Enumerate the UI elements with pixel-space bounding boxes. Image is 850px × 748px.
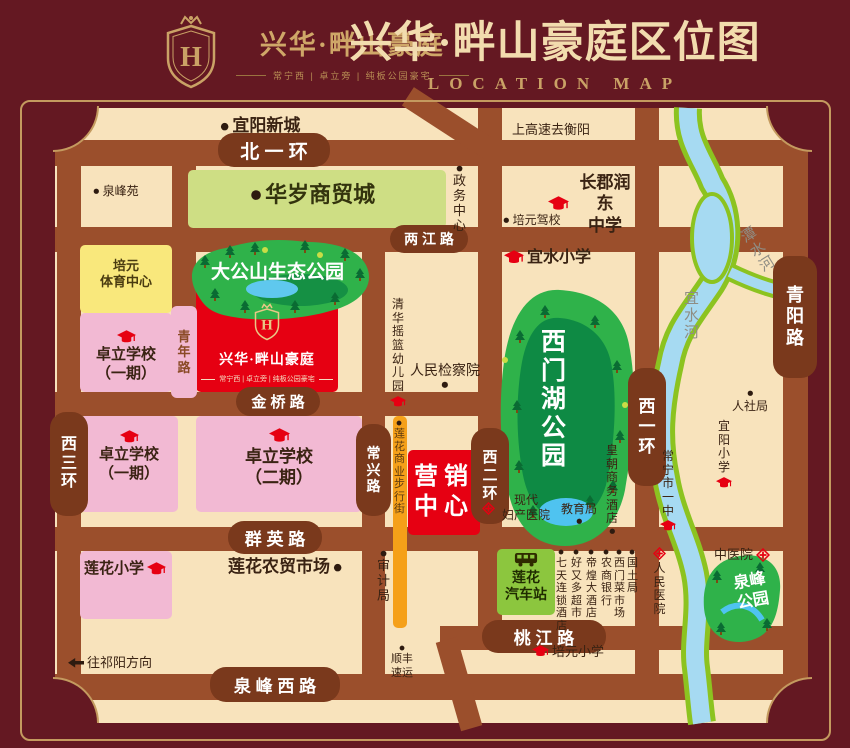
label-text: 宜水河 bbox=[684, 290, 699, 341]
dot-icon bbox=[333, 563, 342, 572]
road-label-jinqiao-rd: 金 桥 路 bbox=[236, 387, 320, 416]
road-beiyihuan bbox=[55, 140, 808, 166]
label-text: 人民医院 bbox=[654, 562, 666, 617]
poi-yiyang-new-town: 宜阳新城 bbox=[220, 116, 300, 136]
label-line: 卓立学校 bbox=[84, 446, 174, 465]
label-text: 人社局 bbox=[732, 399, 768, 413]
poi-sf-express: 顺丰速运 bbox=[382, 645, 422, 681]
map: H 兴华·畔山豪庭 常宁西 | 卓立旁 | 纯板公园豪宅 北 一 环两 江 路金… bbox=[0, 0, 850, 748]
road-label-text: 青年路 bbox=[178, 329, 191, 375]
project-tagline: 常宁西 | 卓立旁 | 纯板公园豪宅 bbox=[201, 374, 332, 384]
dot-icon bbox=[588, 549, 594, 555]
label-text: 莲花农贸市场 bbox=[228, 557, 330, 577]
poi-highway-to-hengyang: 上高速去衡阳 bbox=[512, 122, 590, 138]
poi-dagongshan-park-label: 大公山生态公园 bbox=[211, 262, 344, 285]
road-label-beiyihuan: 北 一 环 bbox=[218, 133, 330, 167]
poi-sales-center-label: 营销中心 bbox=[408, 462, 480, 522]
poi-dihuang-hotel: 帝煌大酒店 bbox=[586, 549, 597, 620]
label-line: 速运 bbox=[382, 667, 422, 681]
label-text: 常宁市一中 bbox=[662, 450, 674, 518]
poi-yishui-primary: 宜水小学 bbox=[504, 248, 591, 267]
cap-icon bbox=[147, 562, 166, 576]
poi-lianhua-primary-label: 莲花小学 bbox=[84, 560, 166, 578]
cap-icon bbox=[390, 396, 406, 408]
cap-icon bbox=[269, 428, 290, 444]
poi-qinghua-cradle-kindergarten: 清华摇篮幼儿园 bbox=[390, 298, 406, 408]
poi-lianhua-bus-station-label: 莲花汽车站 bbox=[499, 552, 553, 604]
poi-peiyuan-sports-label: 培元体育中心 bbox=[84, 258, 168, 291]
label-line: 体育中心 bbox=[84, 274, 168, 290]
svg-text:H: H bbox=[180, 42, 202, 73]
poi-peiyuan-primary: 培元小学 bbox=[532, 644, 604, 660]
label-text: 农商银行 bbox=[601, 557, 612, 607]
poi-7days-inn: 七天连锁酒店 bbox=[556, 549, 567, 632]
road-qingyang-rd bbox=[783, 118, 808, 723]
dot-icon bbox=[380, 550, 387, 557]
cap-icon bbox=[716, 477, 732, 489]
label-text: 往祁阳方向 bbox=[87, 655, 152, 671]
dot-icon bbox=[503, 217, 510, 224]
label-line: 卓立学校 bbox=[216, 446, 342, 467]
label-text: 莲花小学 bbox=[84, 560, 144, 578]
label-text: 大公山生态公园 bbox=[211, 262, 344, 285]
poi-haoyouduo-supermarket: 好又多超市 bbox=[571, 549, 582, 620]
poi-lianhua-farmers-market: 莲花农贸市场 bbox=[228, 557, 342, 577]
arrow-icon bbox=[68, 658, 84, 668]
poi-rural-commercial-bank: 农商银行 bbox=[601, 549, 612, 607]
poi-land-resources-bureau: 国土局 bbox=[627, 549, 638, 595]
label-line: 培元 bbox=[84, 258, 168, 274]
label-text: 教育局 bbox=[561, 502, 597, 516]
road-label-changxing-rd: 常兴路 bbox=[356, 424, 391, 516]
dot-icon bbox=[573, 549, 579, 555]
cap-icon bbox=[660, 520, 676, 532]
label-line: 长郡润东 bbox=[572, 172, 638, 215]
dot-icon bbox=[396, 420, 402, 426]
road-label-qingyang-rd: 青阳路 bbox=[773, 256, 817, 378]
label-line: （一期） bbox=[84, 465, 174, 484]
location-map-poster: { "header": { "logo_name": "兴华·畔山豪庭", "l… bbox=[0, 0, 850, 748]
cap-icon bbox=[548, 196, 569, 212]
label-line: 营销 bbox=[408, 462, 480, 492]
label-text: 宜阳小学 bbox=[718, 420, 730, 475]
label-line: 顺丰 bbox=[382, 653, 422, 667]
poi-changjun-rundong-school: 长郡润东中学 bbox=[548, 172, 638, 236]
poi-audit-bureau: 审计局 bbox=[377, 550, 390, 604]
road-label-text: 泉 峰 西 路 bbox=[234, 672, 316, 697]
label-text: 七天连锁酒店 bbox=[556, 557, 567, 632]
label-text: 上高速去衡阳 bbox=[512, 122, 590, 138]
poi-peoples-procuratorate: 人民检察院 bbox=[410, 362, 480, 388]
label-text: 华岁商贸城 bbox=[265, 182, 375, 208]
cap-icon bbox=[120, 430, 139, 444]
label-text: 皇朝商务酒店 bbox=[606, 444, 618, 526]
label-line: 莲花 bbox=[499, 569, 553, 587]
page-subtitle: LOCATION MAP bbox=[315, 74, 795, 94]
road-label-text: 群 英 路 bbox=[245, 525, 305, 550]
label-text: 好又多超市 bbox=[571, 557, 582, 620]
shield-crest-icon: H bbox=[160, 14, 222, 90]
road-label-quanfeng-west-rd: 泉 峰 西 路 bbox=[210, 667, 340, 702]
road-label-text: 常兴路 bbox=[367, 445, 381, 495]
label-text: 审计局 bbox=[377, 559, 390, 603]
label-text: 培元驾校 bbox=[513, 213, 561, 227]
cap-icon bbox=[504, 250, 524, 265]
title-block: 兴华·畔山豪庭区位图 LOCATION MAP bbox=[315, 8, 795, 94]
poi-quanfengyuan: 泉峰苑 bbox=[93, 184, 139, 198]
label-text: 宜水小学 bbox=[527, 248, 591, 267]
dot-icon bbox=[250, 189, 262, 201]
cross-icon bbox=[653, 547, 666, 560]
label-text: 西门湖公园 bbox=[541, 328, 566, 471]
dot-icon bbox=[456, 165, 463, 172]
label-text: 中医院 bbox=[714, 547, 753, 563]
label-text: 清华摇篮幼儿园 bbox=[392, 298, 404, 394]
road-label-text: 北 一 环 bbox=[240, 137, 308, 164]
poi-social-security-bureau: 人社局 bbox=[732, 390, 768, 413]
road-label-text: 两 江 路 bbox=[404, 229, 454, 249]
poi-yishui-river-label: 宜水河 bbox=[684, 290, 699, 341]
poi-yiyang-primary: 宜阳小学 bbox=[716, 420, 732, 489]
poi-zhuoli-school-1b-label: 卓立学校（一期） bbox=[84, 430, 174, 484]
poi-lianhua-walking-street-label: 莲花商业步行街 bbox=[394, 420, 405, 516]
label-line: 中心 bbox=[408, 492, 480, 522]
label-text: 人民检察院 bbox=[410, 362, 480, 379]
dot-icon bbox=[399, 645, 405, 651]
dot-icon bbox=[576, 518, 583, 525]
poi-government-center: 政务中心 bbox=[453, 165, 466, 233]
label-line: 妇产医院 bbox=[498, 508, 554, 523]
cap-icon bbox=[117, 330, 136, 344]
dot-icon bbox=[747, 390, 754, 397]
poi-ximen-food-market: 西门菜市场 bbox=[614, 549, 625, 620]
poi-ximenhu-park-label: 西门湖公园 bbox=[541, 328, 566, 471]
dot-icon bbox=[616, 549, 622, 555]
road-label-xisanhuan: 西三环 bbox=[50, 412, 88, 516]
cross-icon bbox=[482, 502, 495, 515]
dot-icon bbox=[93, 188, 100, 195]
label-text: 西门菜市场 bbox=[614, 557, 625, 620]
dot-icon bbox=[629, 549, 635, 555]
poi-quanfeng-park-label: 泉峰公园 bbox=[720, 567, 782, 616]
label-text: 莲花商业步行街 bbox=[394, 428, 405, 516]
poi-education-bureau: 教育局 bbox=[561, 502, 597, 525]
road-label-text: 青阳路 bbox=[786, 285, 804, 349]
dot-icon bbox=[609, 528, 616, 535]
header: H 兴华·畔山豪庭 常宁西 | 卓立旁 | 纯板公园豪宅 兴华·畔山豪庭区位图 … bbox=[0, 0, 850, 105]
poi-to-qiyang-direction: 往祁阳方向 bbox=[68, 655, 152, 671]
cap-icon bbox=[532, 645, 549, 658]
road-label-text: 西三环 bbox=[61, 436, 77, 493]
poi-tcm-hospital: 中医院 bbox=[714, 547, 770, 563]
project-name: 兴华·畔山豪庭 bbox=[219, 349, 315, 369]
road-quanfeng-west-rd bbox=[55, 674, 808, 700]
label-line: 卓立学校 bbox=[84, 346, 168, 365]
label-text: 宜阳新城 bbox=[232, 116, 300, 136]
label-line: 汽车站 bbox=[499, 586, 553, 604]
label-text: 国土局 bbox=[627, 557, 638, 595]
road-label-qunying-rd: 群 英 路 bbox=[228, 521, 322, 554]
poi-peoples-hospital: 人民医院 bbox=[653, 547, 666, 617]
poi-huangchao-business-hotel: 皇朝商务酒店 bbox=[606, 444, 618, 535]
label-line: （二期） bbox=[216, 467, 342, 488]
dot-icon bbox=[441, 381, 449, 389]
road-label-text: 金 桥 路 bbox=[251, 391, 304, 412]
poi-zhuoli-school-2-label: 卓立学校（二期） bbox=[216, 428, 342, 488]
label-text: 政务中心 bbox=[453, 174, 466, 233]
poi-changning-no1-middle-school: 常宁市一中 bbox=[660, 450, 676, 532]
page-title: 兴华·畔山豪庭区位图 bbox=[315, 8, 795, 70]
poi-peiyuan-driving-school: 培元驾校 bbox=[503, 213, 561, 227]
label-line: （一期） bbox=[84, 365, 168, 384]
label-text: 帝煌大酒店 bbox=[586, 557, 597, 620]
road-label-text: 西一环 bbox=[639, 397, 656, 457]
road-label-qingnian-rd: 青年路 bbox=[171, 306, 197, 398]
svg-text:H: H bbox=[261, 318, 273, 334]
label-text: 泉峰苑 bbox=[103, 184, 139, 198]
cross-icon bbox=[756, 548, 770, 562]
label-text: 培元小学 bbox=[552, 644, 604, 660]
project-shield-icon: H bbox=[252, 303, 282, 341]
dot-icon bbox=[558, 549, 564, 555]
bus-icon bbox=[514, 552, 538, 567]
dot-icon bbox=[603, 549, 609, 555]
dot-icon bbox=[220, 122, 229, 131]
poi-zhuoli-school-1a-label: 卓立学校（一期） bbox=[84, 330, 168, 384]
poi-huasui-mall-label: 华岁商贸城 bbox=[250, 182, 375, 208]
poi-modern-maternity-hospital: 现代妇产医院 bbox=[482, 493, 554, 523]
label-line: 中学 bbox=[572, 215, 638, 236]
label-line: 现代 bbox=[498, 493, 554, 508]
